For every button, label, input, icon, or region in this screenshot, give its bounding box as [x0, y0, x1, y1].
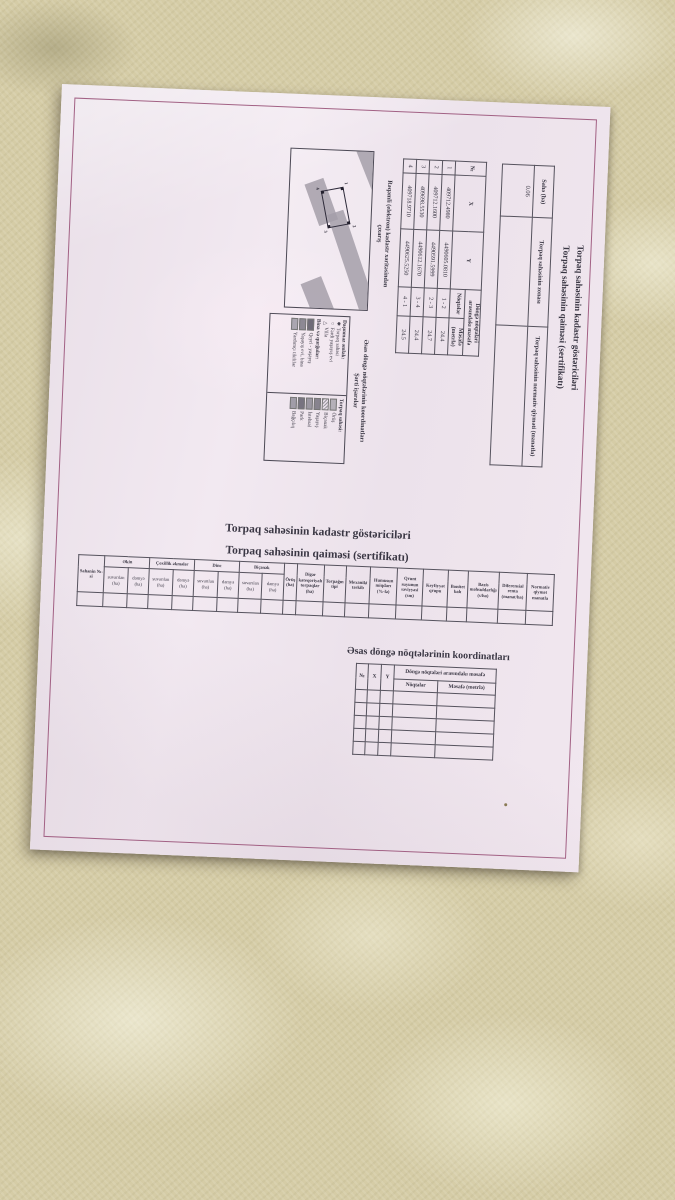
cell-y: 4490612.1670 — [412, 229, 427, 287]
color-swatch — [290, 397, 297, 409]
col-mechanical: Mexaniki tərkib — [345, 566, 371, 604]
cell-x: 409718.9710 — [401, 173, 416, 229]
legend-item-label: Bağçılıq — [290, 411, 296, 428]
summary-zone-value — [496, 216, 533, 326]
legend-item-label: Qeyri - yaşayış — [307, 333, 314, 364]
col-other-category: Digər kateqoriyalı torpaqlar (ha) — [296, 564, 324, 602]
legend-item-label: Yaşayış — [314, 412, 320, 428]
cadastre-map-extract: 1 2 3 4 — [284, 148, 375, 311]
parcel-corner-marker — [321, 190, 325, 194]
cadastre-document-paper: Torpaq sahəsinin kadastr göstəriciləri T… — [30, 84, 611, 872]
cell-y: 4490605.0810 — [437, 230, 452, 288]
col-differential-rent: Diferensial renta (manat/ha) — [498, 572, 528, 610]
col-base-yield: Bazis məhsuldarlığı (s/ha) — [467, 571, 499, 609]
legend-item-label: Biçənək — [322, 412, 328, 429]
cell-points: 1 - 2 — [436, 288, 450, 318]
sub-irrigated: suvarılan (ha) — [104, 567, 129, 594]
col-soil-type: Torpağın tipi — [323, 565, 347, 603]
col-normative-price: Normativ qiymət manatla — [526, 573, 554, 611]
cell-points: 4 - 1 — [397, 287, 411, 317]
parcel-corner-marker — [347, 221, 351, 225]
cadastre-map-block: Rəqəmli (elektron) kadastr xəritəsindən … — [270, 147, 395, 316]
summary-normative-value — [490, 324, 528, 466]
map-road-strip — [353, 148, 375, 191]
sub-irrigated: suvarılan (ha) — [238, 572, 263, 599]
parcel-corner-marker — [327, 225, 331, 229]
sub-irrigated: suvarılan (ha) — [193, 570, 218, 597]
cell-x: 409698.5530 — [414, 173, 429, 229]
corner-coordinates-table: № X Y Döngə nöqtələri arasındakı məsafə … — [395, 158, 487, 356]
color-swatch — [306, 397, 313, 409]
cell-x: 409712.4980 — [440, 175, 455, 231]
cell-distance: 24.7 — [422, 317, 437, 355]
legend-immovable-column: Daşınmaz əmlak: ✱ Torpaq sahəsi ○ Fərdi … — [267, 314, 349, 396]
cell-x: 409712.1600 — [427, 174, 442, 230]
legend-land-column: Torpaq sahəsi: Örüş Biçənək — [265, 393, 347, 463]
legend-item-label: Yardımçı tikililər — [290, 332, 297, 367]
coords-col-x: X — [453, 175, 486, 232]
rotated-title: Torpaq sahəsinin kadastr göstəriciləri T… — [549, 159, 600, 476]
paper-speck — [504, 803, 507, 806]
cell-no: 3 — [416, 159, 430, 174]
sub-dry: dəmyə (ha) — [262, 573, 284, 600]
parcel-corner-marker — [341, 187, 345, 191]
col-humus: Humusun miqdarı (%-lə) — [369, 567, 397, 605]
legend-land-header: Torpaq sahəsi: — [336, 399, 345, 461]
coords-col-no: № — [455, 161, 486, 176]
legend-item-label: İstehsal — [306, 411, 312, 427]
cell-no: 4 — [403, 159, 417, 174]
parcel-point-label: 2 — [351, 225, 356, 228]
col-groundwater: Qrunt suyunun səviyyəsi (sm) — [396, 568, 424, 606]
summary-area-value: 0.06 — [500, 164, 534, 217]
cell-distance: 24.4 — [409, 316, 424, 354]
lower-coordinates-table: № X Y Döngə nöqtələri arasındakı məsafə … — [352, 663, 497, 761]
dwelling-house-icon: ○ — [329, 319, 335, 327]
legend-block: Əsas döngə nöqtələrinin koordinatları Şə… — [264, 313, 371, 465]
col-quality-group: Keyfiyyət qrupu — [422, 569, 448, 607]
sub-dry: dəmyə (ha) — [127, 568, 149, 595]
legend-item-label: Yaşayış evi, bina — [298, 332, 305, 367]
summary-col-area: Sahə (ha) — [532, 165, 554, 218]
cell-y: 4490625.5250 — [399, 229, 414, 287]
coords-col-x: X — [367, 664, 381, 691]
cell-no: 2 — [429, 160, 443, 175]
coords-col-no: № — [355, 663, 368, 689]
color-swatch — [307, 318, 314, 330]
coords-col-y: Y — [380, 664, 394, 691]
map-road-strip — [301, 276, 344, 311]
sub-dry: dəmyə (ha) — [172, 570, 194, 597]
hatched-swatch — [322, 398, 329, 410]
land-parcel-icon: ✱ — [335, 320, 341, 328]
cell-no: 1 — [442, 161, 456, 176]
cell-distance: 24.4 — [435, 317, 450, 355]
legend-item-label: Villa — [322, 327, 328, 337]
legend-item-label: Örüş — [330, 412, 336, 422]
coords-col-points: Nöqtələr — [449, 289, 465, 319]
coords-group-header: Döngə nöqtələri arasındakı məsafə — [463, 290, 482, 357]
legend-box: Daşınmaz əmlak: ✱ Torpaq sahəsi ○ Fərdi … — [264, 313, 351, 464]
color-swatch — [314, 398, 321, 410]
color-swatch — [330, 398, 337, 410]
sub-irrigated: suvarılan (ha) — [149, 569, 174, 596]
sub-dry: dəmyə (ha) — [217, 571, 239, 598]
villa-icon: △ — [322, 319, 328, 327]
col-bonitet: Bonitet balı — [447, 570, 469, 608]
col-parcel-no: Sahənin №-si — [77, 555, 105, 593]
color-swatch — [299, 318, 306, 330]
legend-item-label: Park — [298, 411, 304, 421]
coords-col-distance: Məsafə (metrlə) — [448, 318, 464, 356]
cell-y: 4490591.5999 — [425, 230, 440, 288]
parcel-point-label: 3 — [323, 230, 328, 233]
cell-points: 3 - 4 — [410, 287, 424, 317]
rotated-section: Torpaq sahəsinin kadastr göstəriciləri T… — [209, 145, 600, 477]
parcel-summary-table: Sahə (ha) Torpaq sahəsinin zonası Torpaq… — [490, 164, 556, 468]
cell-distance: 24.5 — [396, 316, 411, 354]
color-swatch — [291, 318, 298, 330]
coords-col-y: Y — [450, 231, 483, 290]
parcel-point-label: 1 — [343, 182, 348, 185]
cell-points: 2 - 3 — [423, 288, 437, 318]
color-swatch — [298, 397, 305, 409]
